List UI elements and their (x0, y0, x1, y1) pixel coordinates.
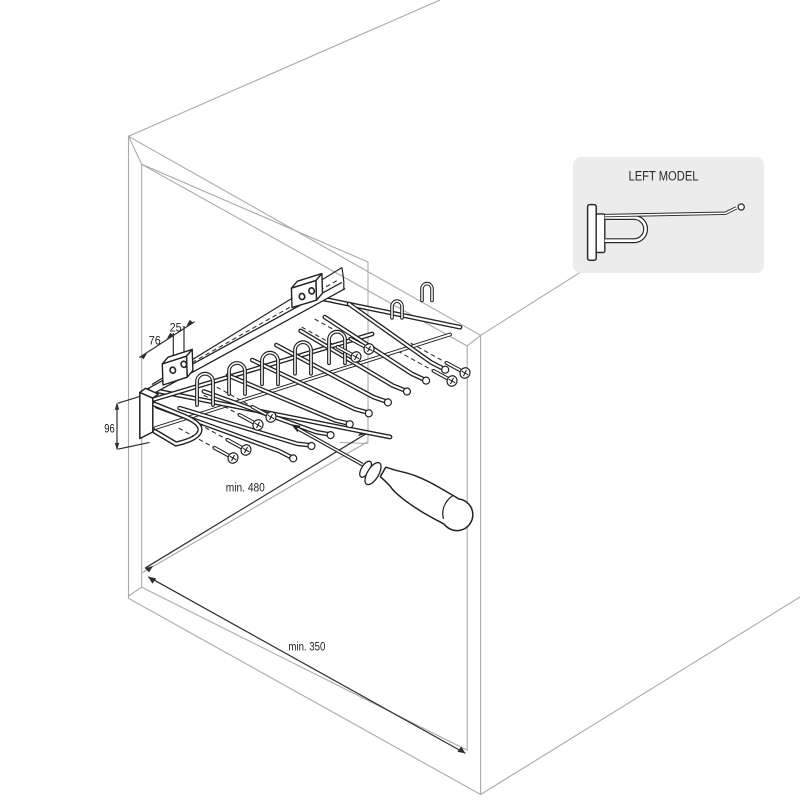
svg-text:76: 76 (149, 333, 161, 347)
svg-text:96: 96 (104, 421, 115, 435)
svg-text:min. 480: min. 480 (226, 480, 265, 494)
svg-text:LEFT MODEL: LEFT MODEL (629, 168, 699, 184)
svg-text:min. 350: min. 350 (288, 639, 325, 653)
svg-text:25: 25 (170, 321, 182, 335)
